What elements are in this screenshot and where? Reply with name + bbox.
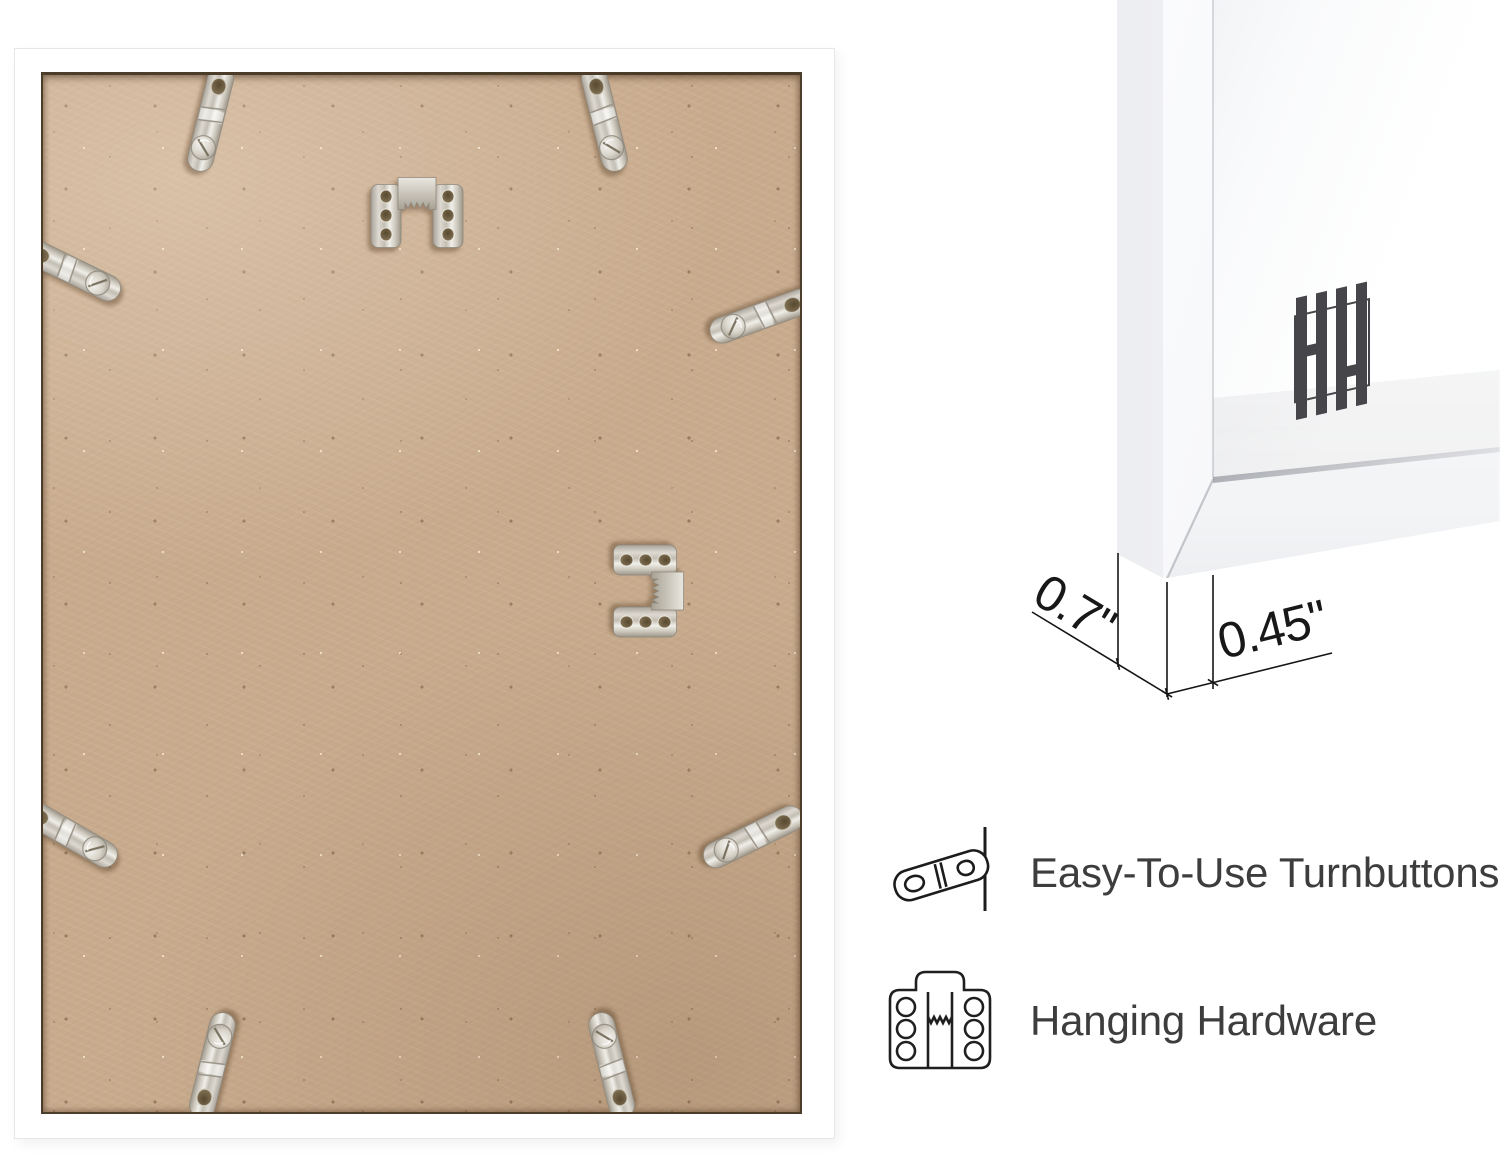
- turnbutton-metal: [694, 794, 802, 879]
- hanging-hardware-icon: [884, 966, 996, 1074]
- turnbutton: [571, 72, 638, 183]
- feature-label: Easy-To-Use Turnbuttons: [1030, 849, 1499, 897]
- turnbutton: [697, 278, 802, 356]
- turnbutton: [41, 227, 134, 314]
- turnbutton-metal: [41, 788, 127, 879]
- turnbutton: [577, 1001, 644, 1114]
- turnbutton-metal: [571, 72, 637, 178]
- turnbutton-icon: [884, 822, 1000, 918]
- turnbutton-metal: [178, 72, 244, 178]
- feature-label: Hanging Hardware: [1030, 997, 1377, 1045]
- turnbutton: [690, 794, 802, 881]
- closeup-inner-edge: [1212, 0, 1214, 478]
- hh-logo: [1293, 270, 1377, 426]
- product-image: 0.7" 0.45" Easy-To-Use Turnbuttons Hangi…: [0, 0, 1500, 1156]
- dimension-annotation: 0.7" 0.45": [1000, 540, 1420, 720]
- turnbutton-metal: [41, 227, 130, 312]
- hh-monogram-icon: [1293, 270, 1377, 426]
- frame-back-photo: [14, 48, 835, 1139]
- sawtooth-hanger: [607, 544, 686, 638]
- sawtooth-hanger-metal: [370, 176, 464, 250]
- turnbutton-metal: [579, 1006, 645, 1114]
- turnbutton: [176, 72, 243, 183]
- depth-dimension-label: 0.7": [1025, 563, 1125, 654]
- turnbutton: [41, 788, 132, 881]
- sawtooth-hanger: [370, 176, 464, 255]
- frame-corner-closeup: [1100, 0, 1500, 600]
- turnbutton-metal: [702, 278, 802, 354]
- turnbutton-metal: [179, 1006, 245, 1114]
- mdf-backing: [41, 72, 802, 1114]
- turnbutton: [179, 1001, 246, 1114]
- sawtooth-hanger-metal: [612, 544, 686, 638]
